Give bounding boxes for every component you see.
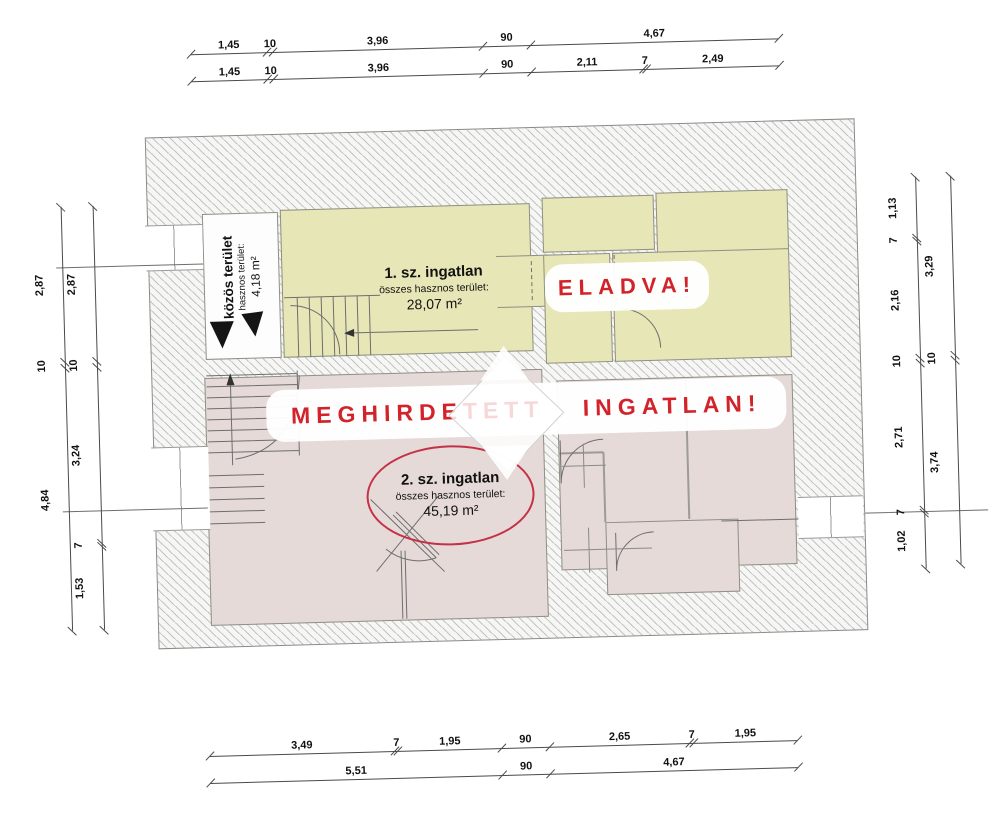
sold-banner: ELADVA!	[544, 260, 709, 312]
dim-segment: 1,95	[693, 724, 797, 743]
dim-segment: 1,13	[899, 177, 917, 238]
dim-label: 7	[73, 542, 85, 548]
dim-label: 2,71	[893, 426, 906, 448]
dim-label: 90	[501, 59, 514, 71]
stair-unit1-arrow-line	[354, 330, 478, 333]
floor-plan-drawing: közös terület hasznos terület: 4,18 m² 1…	[0, 0, 1000, 833]
dim-label: 2,49	[702, 53, 724, 66]
dim-label: 10	[891, 355, 903, 368]
dim-label: 10	[68, 359, 80, 372]
dim-label: 4,67	[643, 27, 665, 40]
dim-label: 2,87	[65, 274, 78, 296]
common-area-value: 4,18 m²	[246, 202, 264, 352]
dim-label: 90	[520, 760, 533, 772]
dim-segment: 3,29	[934, 176, 955, 355]
dim-segment: 90	[483, 56, 531, 73]
dim-segment: 1,45	[191, 63, 268, 81]
dim-segment: 1,95	[398, 732, 502, 751]
dim-segment: 2,11	[531, 53, 643, 72]
dim-label: 3,24	[70, 445, 83, 467]
dim-label: 1,45	[218, 39, 240, 52]
dashed-opening-2	[531, 261, 532, 303]
dim-segment: 1,53	[86, 547, 104, 630]
dim-label: 3,49	[291, 739, 313, 752]
dim-label: 2,16	[889, 290, 902, 312]
dim-segment: 2,87	[77, 206, 97, 362]
dim-label: 2,65	[609, 731, 631, 744]
dim-segment: 3,24	[81, 367, 102, 543]
dim-label: 3,74	[929, 452, 942, 474]
common-area-label: közös terület hasznos terület: 4,18 m²	[202, 212, 282, 360]
dim-label: 4,67	[663, 756, 685, 769]
dim-label: 3,96	[367, 35, 389, 48]
dim-label: 1,53	[74, 578, 87, 600]
door-unit1-mid	[620, 308, 661, 349]
unit1-label: 1. sz. ingatlan összes hasznos terület: …	[344, 261, 523, 315]
dim-label: 1,95	[439, 735, 461, 748]
dim-segment: 2,16	[901, 241, 920, 358]
door-unit2-lower	[616, 532, 655, 571]
dim-label: 7	[895, 509, 907, 515]
dim-label: 1,95	[734, 727, 756, 740]
dim-segment: 2,65	[549, 727, 690, 747]
dim-label: 1,13	[887, 197, 900, 219]
dim-label: 1,45	[219, 66, 241, 79]
dim-label: 90	[519, 733, 532, 745]
door-axis-marks	[561, 442, 652, 573]
partition-wall-small	[401, 551, 407, 619]
unit2-label: 2. sz. ingatlan összes hasznos terület: …	[395, 469, 506, 521]
dim-label: 2,87	[33, 274, 46, 296]
dim-label: 2,11	[577, 56, 598, 69]
dim-segment: 2,87	[45, 207, 65, 363]
dim-segment: 1,45	[190, 36, 267, 54]
dim-label: 7	[888, 237, 900, 243]
dim-segment: 90	[502, 758, 550, 775]
dim-label: 1,02	[896, 531, 909, 553]
dim-segment: 1,02	[908, 514, 925, 569]
door-unit2-top	[560, 439, 604, 483]
dim-label: 90	[500, 32, 513, 44]
dim-label: 3,29	[923, 255, 936, 277]
stair-common-lower-treads	[209, 474, 265, 523]
dim-segment: 90	[482, 29, 530, 46]
dim-label: 4,84	[39, 489, 52, 511]
dim-segment: 2,49	[647, 49, 780, 69]
unit2-area-value: 45,19 m²	[396, 501, 506, 521]
dim-segment: 2,71	[904, 363, 924, 510]
dim-label: 10	[926, 352, 938, 365]
dim-label: 3,96	[367, 62, 389, 75]
dim-label: 10	[36, 360, 48, 373]
dim-segment: 90	[501, 731, 549, 748]
dim-label: 5,51	[345, 765, 367, 778]
